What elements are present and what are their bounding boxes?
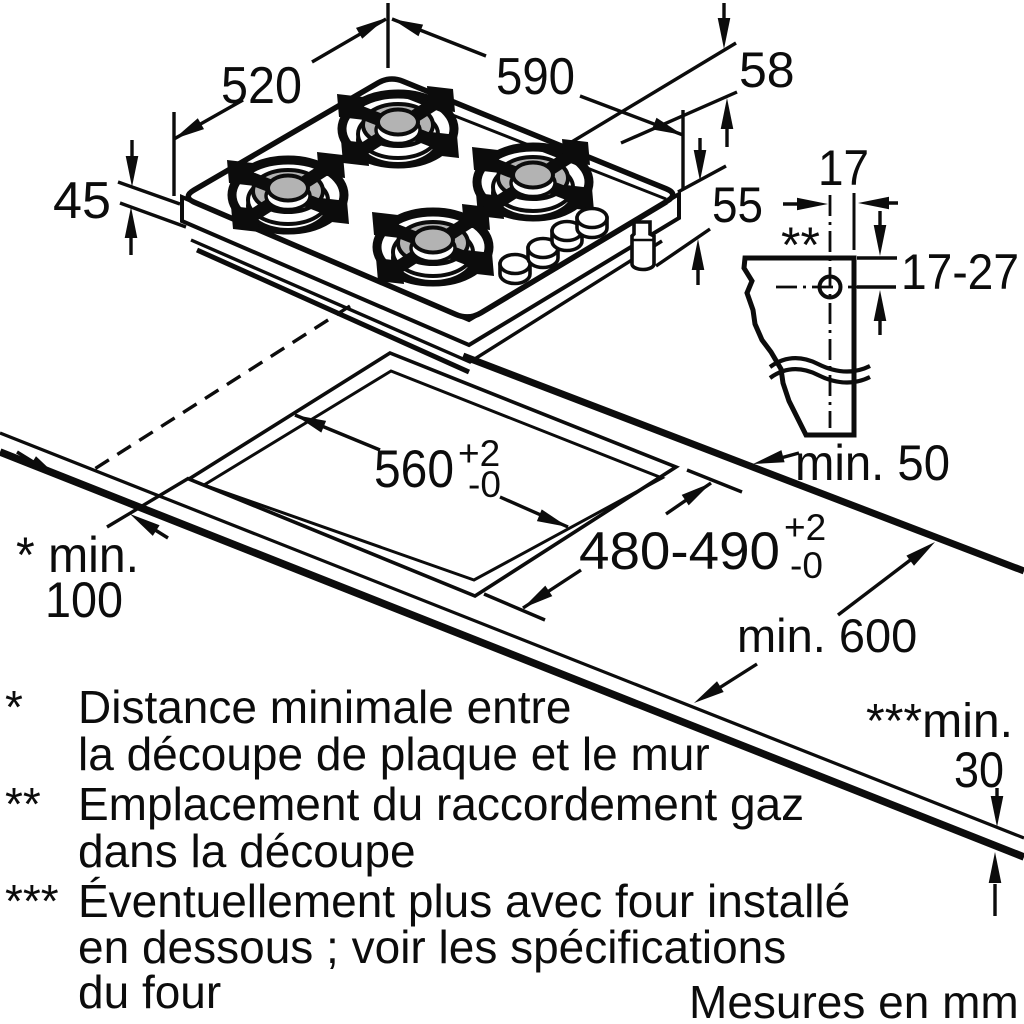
- svg-text:min. 600: min. 600: [737, 609, 917, 662]
- svg-text:Distance minimale entre: Distance minimale entre: [78, 681, 571, 733]
- svg-text:la découpe de plaque et le mur: la découpe de plaque et le mur: [78, 728, 710, 780]
- svg-text:**: **: [5, 778, 41, 830]
- svg-text:100: 100: [45, 572, 123, 628]
- svg-text:17-27: 17-27: [901, 244, 1019, 300]
- svg-text:58: 58: [739, 42, 795, 98]
- svg-text:480-490: 480-490: [579, 522, 780, 581]
- svg-text:***min.: ***min.: [866, 695, 1013, 748]
- svg-text:*: *: [5, 681, 23, 733]
- svg-text:***: ***: [5, 875, 59, 927]
- svg-text:min. 50: min. 50: [795, 435, 950, 491]
- svg-text:Éventuellement plus avec four: Éventuellement plus avec four installé: [78, 875, 850, 927]
- svg-text:590: 590: [496, 48, 575, 106]
- svg-text:+2: +2: [784, 507, 826, 548]
- svg-text:45: 45: [53, 172, 111, 230]
- svg-text:55: 55: [712, 177, 763, 233]
- svg-text:Emplacement du raccordement ga: Emplacement du raccordement gaz: [78, 778, 804, 830]
- svg-text:-0: -0: [790, 545, 823, 586]
- svg-text:17: 17: [818, 140, 869, 196]
- svg-text:du four: du four: [78, 966, 221, 1018]
- svg-text:Mesures en mm: Mesures en mm: [689, 976, 1019, 1024]
- svg-text:**: **: [781, 217, 820, 273]
- svg-text:560: 560: [374, 440, 454, 499]
- svg-text:-0: -0: [468, 464, 501, 505]
- svg-text:520: 520: [221, 57, 302, 115]
- svg-text:dans la découpe: dans la découpe: [78, 825, 416, 877]
